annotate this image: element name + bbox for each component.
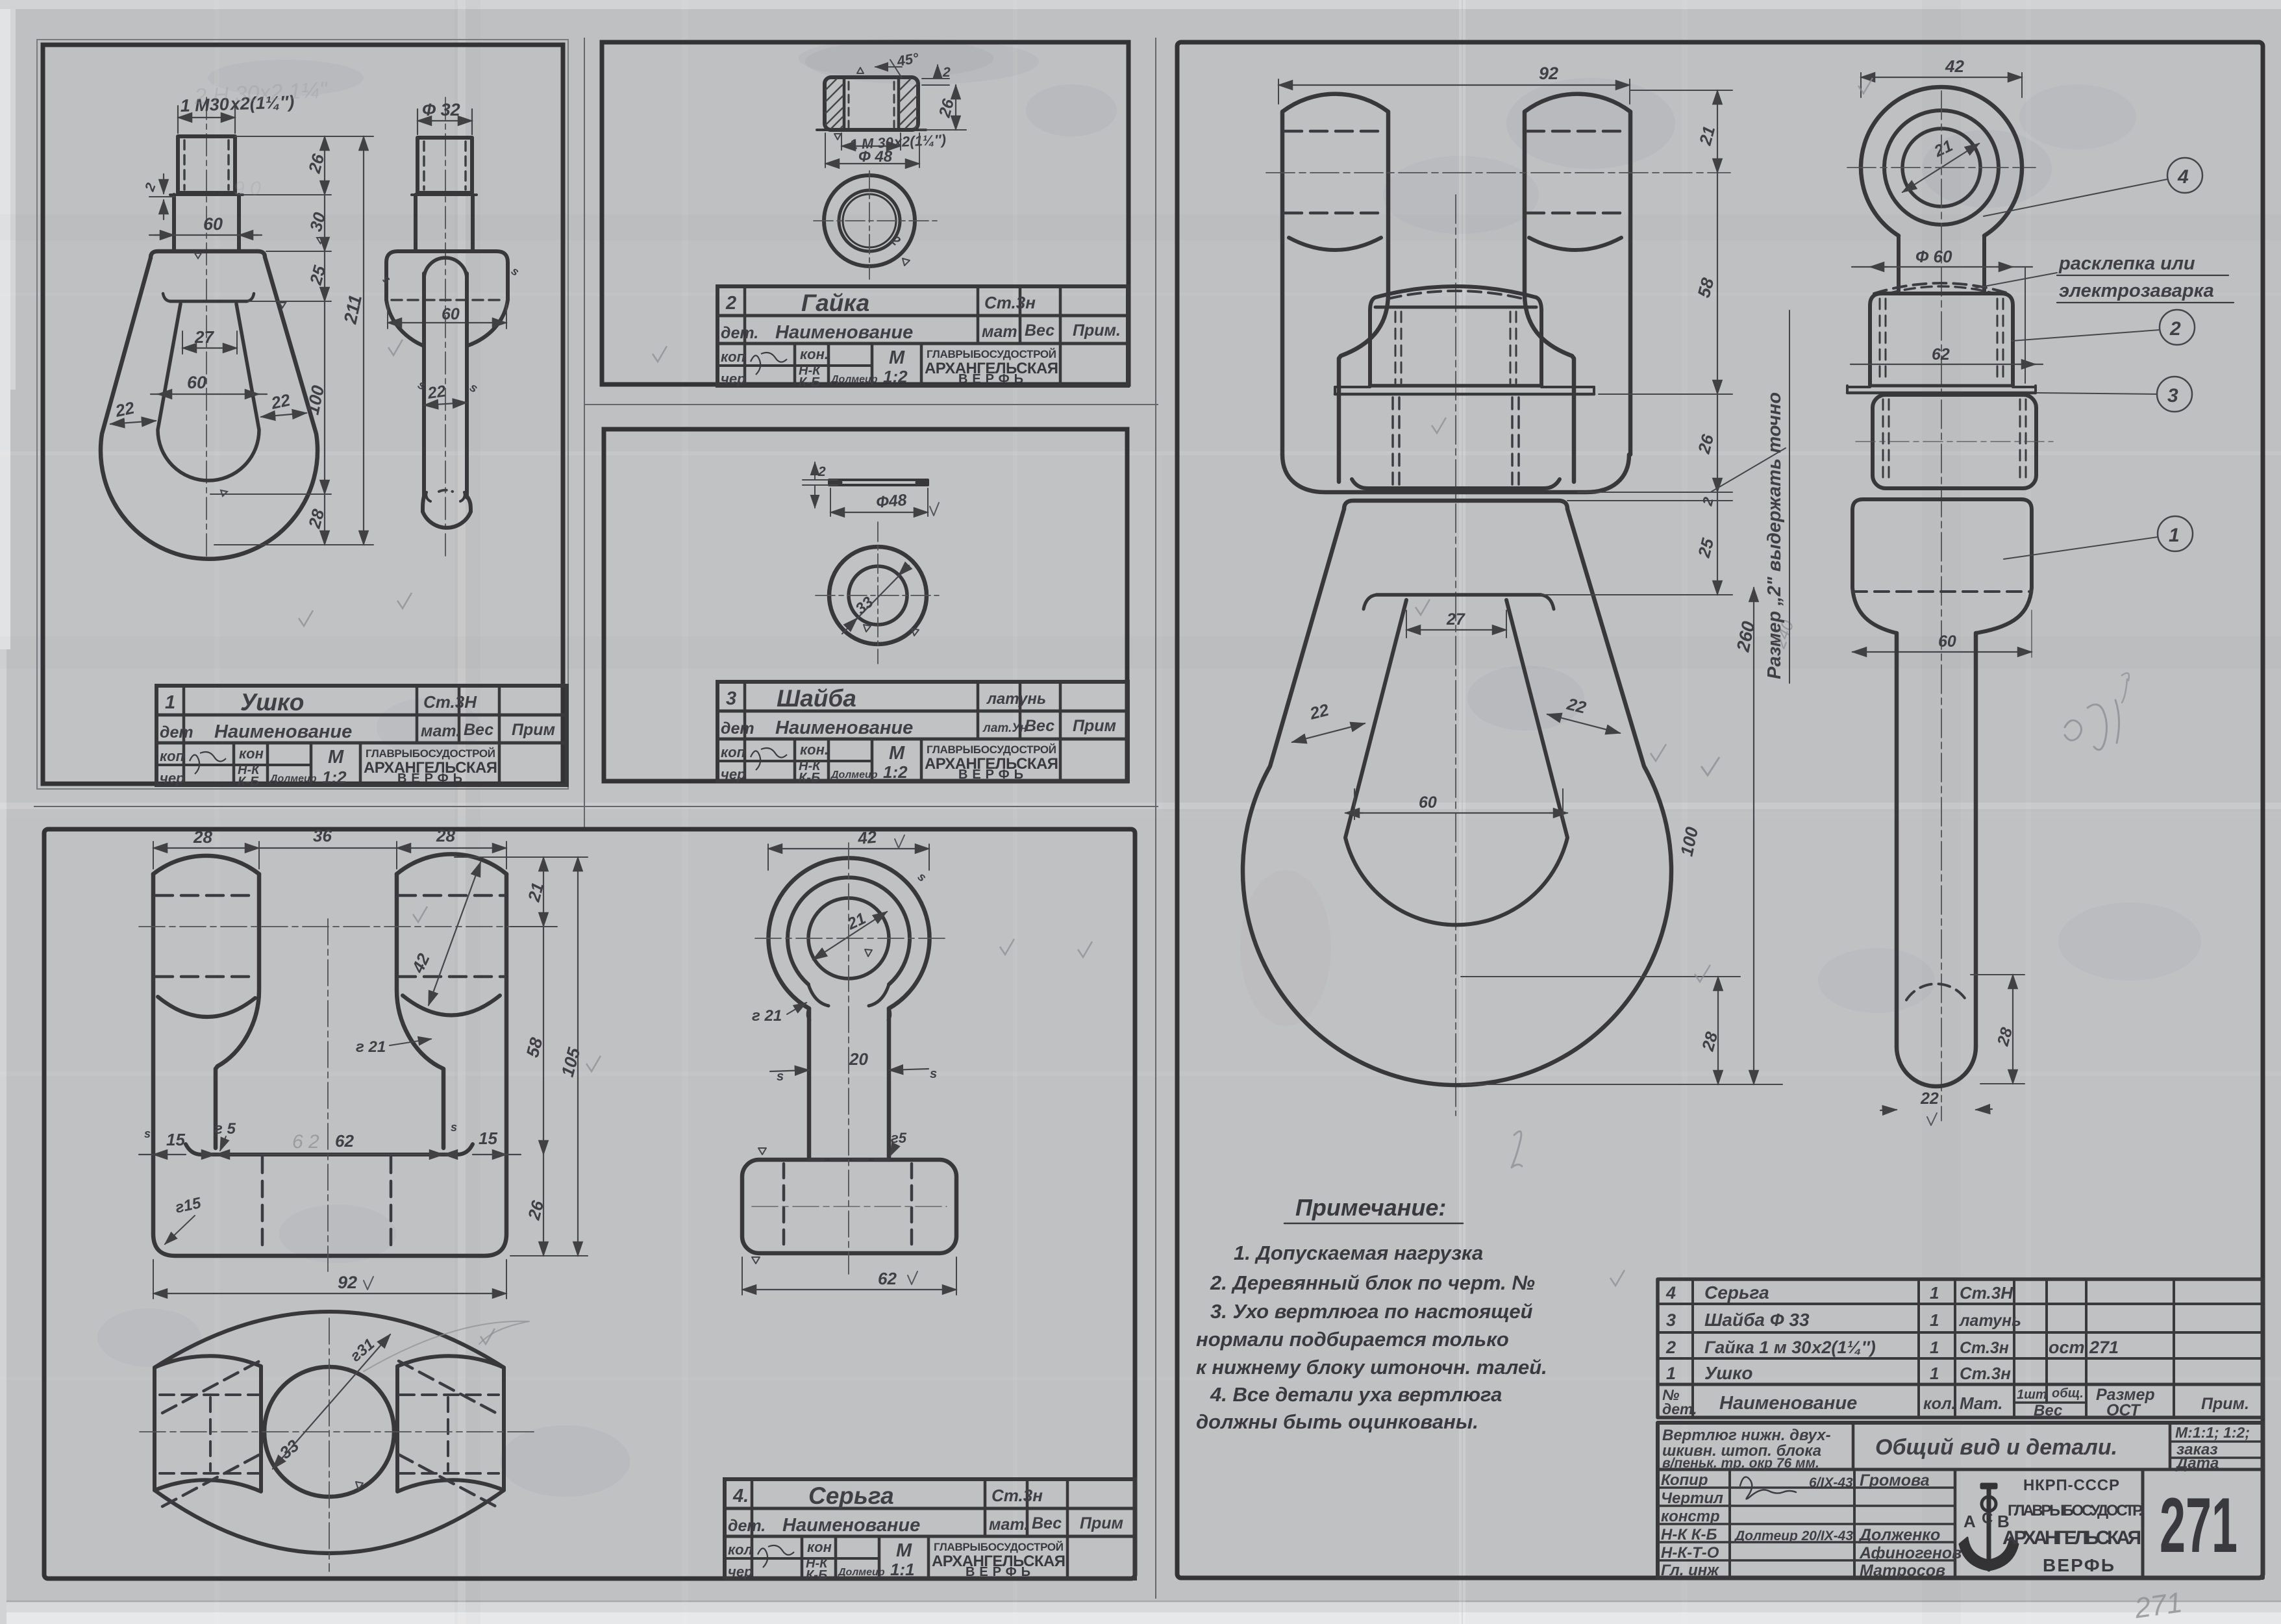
svg-text:Вес: Вес (1025, 717, 1054, 735)
svg-text:Долженко: Долженко (1858, 1526, 1940, 1544)
svg-text:дет.: дет. (721, 324, 758, 342)
svg-text:нормали подбирается только: нормали подбирается только (1196, 1328, 1509, 1351)
svg-text:36: 36 (313, 826, 332, 845)
svg-text:Общий вид и детали.: Общий вид и детали. (1875, 1435, 2117, 1460)
svg-text:к нижнему блоку штоночн. талей: к нижнему блоку штоночн. талей. (1196, 1356, 1547, 1379)
svg-text:Долтеир 20/IX-43: Долтеир 20/IX-43 (1734, 1529, 1853, 1543)
svg-text:3: 3 (2167, 385, 2178, 406)
svg-text:60: 60 (1938, 632, 1956, 651)
svg-text:ГЛАВРЫБОСУДОСТРОЙ: ГЛАВРЫБОСУДОСТРОЙ (927, 743, 1056, 756)
svg-text:Ст.3н: Ст.3н (991, 1486, 1043, 1505)
svg-text:Ф 32: Ф 32 (422, 100, 460, 119)
svg-text:дет: дет (721, 719, 754, 738)
svg-text:М: М (328, 747, 344, 768)
svg-text:60: 60 (203, 214, 223, 234)
svg-text:2: 2 (2169, 318, 2181, 340)
svg-text:ВЕРФЬ: ВЕРФЬ (2043, 1555, 2114, 1575)
svg-text:Ушко: Ушко (240, 689, 304, 716)
svg-text:М: М (889, 743, 905, 764)
svg-text:62: 62 (335, 1131, 354, 1151)
svg-text:Серьга: Серьга (808, 1482, 894, 1509)
svg-text:в/пеньк. тр. окр 76 мм.: в/пеньк. тр. окр 76 мм. (1662, 1456, 1819, 1471)
svg-text:2: 2 (817, 464, 826, 479)
svg-text:Наименование: Наименование (1719, 1393, 1857, 1414)
svg-text:1: 1 (2169, 525, 2180, 546)
svg-text:К-Б: К-Б (806, 1568, 827, 1582)
svg-text:28: 28 (193, 827, 212, 847)
svg-text:271: 271 (2132, 1586, 2185, 1624)
svg-text:15: 15 (166, 1130, 185, 1149)
svg-text:Ф 48: Ф 48 (858, 148, 893, 166)
svg-text:коп: коп (721, 744, 746, 760)
svg-text:Гайка: Гайка (801, 290, 869, 316)
svg-text:1. Допускаемая нагрузка: 1. Допускаемая нагрузка (1234, 1242, 1483, 1264)
svg-text:Примечание:: Примечание: (1295, 1194, 1446, 1221)
svg-text:Вертлюг нижн. двух-: Вертлюг нижн. двух- (1662, 1427, 1831, 1444)
svg-text:1: 1 (165, 692, 175, 713)
svg-text:62: 62 (878, 1269, 897, 1288)
svg-text:Ф48: Ф48 (875, 491, 908, 512)
svg-text:дет: дет (160, 723, 193, 742)
svg-text:Вес: Вес (1032, 1514, 1062, 1532)
svg-text:общ.: общ. (2052, 1386, 2084, 1401)
svg-text:чер: чер (721, 371, 746, 387)
svg-text:Долмеир: Долмеир (837, 1567, 885, 1578)
svg-text:2: 2 (942, 65, 951, 80)
svg-text:Матросов: Матросов (1860, 1562, 1945, 1580)
svg-text:Дата: Дата (2175, 1455, 2219, 1472)
svg-text:латунь: латунь (1959, 1312, 2021, 1330)
svg-text:расклепка или: расклепка или (2058, 253, 2195, 274)
svg-text:s: s (930, 1067, 937, 1081)
svg-text:констр: констр (1661, 1508, 1720, 1525)
svg-text:1: 1 (1930, 1364, 1939, 1383)
svg-text:коп: коп (721, 349, 746, 365)
svg-text:дет.: дет. (1662, 1401, 1697, 1418)
svg-text:4: 4 (1665, 1283, 1676, 1303)
svg-text:Размер „2" выдержать точно: Размер „2" выдержать точно (1764, 392, 1785, 679)
svg-text:Прим: Прим (1073, 717, 1116, 735)
svg-text:Ст.3н: Ст.3н (984, 293, 1036, 312)
svg-text:лат.Ун: лат.Ун (982, 721, 1028, 735)
svg-text:ОСТ: ОСТ (2106, 1401, 2142, 1419)
svg-text:s: s (144, 1127, 151, 1140)
svg-text:М:1:1; 1:2;: М:1:1; 1:2; (2175, 1424, 2250, 1441)
svg-text:Прим.: Прим. (2201, 1395, 2249, 1413)
svg-text:мат.: мат. (421, 722, 460, 740)
svg-text:62: 62 (1932, 345, 1950, 364)
svg-text:22: 22 (1920, 1090, 1939, 1108)
svg-text:Громова: Громова (1860, 1471, 1930, 1490)
svg-text:Шайба: Шайба (777, 685, 856, 712)
svg-text:Шайба Ф 33: Шайба Ф 33 (1704, 1310, 1810, 1330)
svg-text:1:1: 1:1 (890, 1560, 915, 1579)
svg-text:А: А (1963, 1512, 1976, 1531)
svg-text:6 2: 6 2 (292, 1131, 319, 1153)
svg-text:чер: чер (160, 770, 185, 786)
svg-text:s: s (451, 1121, 457, 1134)
svg-text:Ушко: Ушко (1704, 1363, 1752, 1383)
svg-text:27: 27 (194, 327, 214, 347)
svg-text:дет.: дет. (728, 1517, 766, 1535)
svg-text:АРХАНГЕЛЬСКАЯ: АРХАНГЕЛЬСКАЯ (2002, 1527, 2141, 1549)
svg-text:3: 3 (726, 688, 736, 709)
svg-text:1:2: 1:2 (322, 768, 347, 787)
svg-text:кол: кол (728, 1542, 753, 1558)
svg-text:М: М (896, 1540, 912, 1561)
svg-text:3. Ухо вертлюга по настоящей: 3. Ухо вертлюга по настоящей (1210, 1300, 1533, 1323)
svg-text:Чертил: Чертил (1661, 1490, 1723, 1507)
svg-text:1:2: 1:2 (883, 762, 908, 782)
svg-text:Мат.: Мат. (1960, 1393, 2002, 1413)
svg-text:1шт: 1шт (2017, 1388, 2047, 1402)
svg-text:6/IX-43: 6/IX-43 (1809, 1475, 1853, 1490)
svg-text:Прим: Прим (512, 721, 555, 739)
svg-text:Афиногенов: Афиногенов (1859, 1544, 1962, 1562)
svg-text:ГЛАВРЫБОСУДОСТР.: ГЛАВРЫБОСУДОСТР. (2008, 1502, 2143, 1519)
svg-text:22: 22 (426, 382, 447, 403)
svg-text:ост 271: ост 271 (2049, 1338, 2119, 1357)
svg-text:92: 92 (1539, 64, 1558, 83)
svg-text:4. Все детали уха вертлюга: 4. Все детали уха вертлюга (1210, 1383, 1502, 1406)
svg-text:Серьга: Серьга (1704, 1282, 1769, 1303)
svg-text:кон: кон (239, 745, 264, 762)
svg-text:ГЛАВРЫБОСУДОСТРОЙ: ГЛАВРЫБОСУДОСТРОЙ (927, 348, 1056, 360)
svg-text:К-Б: К-Б (238, 775, 259, 789)
svg-text:2: 2 (725, 293, 736, 314)
svg-text:мат.: мат. (989, 1516, 1028, 1534)
svg-text:60: 60 (442, 305, 460, 323)
svg-text:Долмеир: Долмеир (830, 769, 878, 781)
svg-text:мат: мат (982, 323, 1017, 341)
svg-text:9 0: 9 0 (234, 178, 261, 199)
svg-text:Наименование: Наименование (214, 721, 352, 742)
svg-text:К-Б: К-Б (799, 771, 820, 785)
svg-text:Ст.3н: Ст.3н (1960, 1339, 2009, 1357)
svg-text:s: s (777, 1069, 784, 1084)
svg-text:С: С (1982, 1510, 1993, 1527)
svg-text:Вес: Вес (464, 721, 493, 739)
svg-text:1: 1 (1666, 1364, 1676, 1383)
svg-text:20: 20 (849, 1049, 868, 1069)
svg-text:Наименование: Наименование (775, 322, 913, 343)
svg-text:кон.: кон. (800, 742, 829, 758)
svg-text:271: 271 (2160, 1482, 2237, 1569)
svg-text:1: 1 (1930, 1310, 1939, 1330)
svg-text:3: 3 (1666, 1310, 1676, 1330)
svg-text:чер: чер (728, 1564, 753, 1580)
svg-text:латунь: латунь (986, 690, 1046, 708)
svg-text:Н-К-Т-О: Н-К-Т-О (1661, 1544, 1719, 1562)
svg-text:42: 42 (856, 827, 878, 849)
svg-text:Долмеир: Долмеир (830, 374, 878, 385)
svg-text:Вес: Вес (1025, 321, 1054, 340)
svg-text:27: 27 (1446, 610, 1465, 629)
svg-text:28: 28 (436, 826, 455, 845)
svg-text:4: 4 (2177, 166, 2189, 188)
svg-text:Вес: Вес (2034, 1402, 2062, 1419)
svg-text:1:2: 1:2 (883, 367, 908, 386)
svg-text:Прим.: Прим. (1073, 321, 1121, 340)
svg-text:1: 1 (1930, 1338, 1939, 1357)
svg-text:15: 15 (479, 1129, 497, 1148)
svg-text:Н-К К-Б: Н-К К-Б (1661, 1526, 1717, 1543)
svg-text:2: 2 (1665, 1338, 1676, 1357)
svg-text:Ст.3н: Ст.3н (1960, 1364, 2011, 1383)
svg-text:Наименование: Наименование (782, 1515, 920, 1536)
svg-text:г 5: г 5 (214, 1120, 236, 1138)
svg-text:г5: г5 (891, 1130, 907, 1146)
svg-text:ГЛАВРЫБОСУДОСТРОЙ: ГЛАВРЫБОСУДОСТРОЙ (366, 747, 495, 760)
svg-text:коп: коп (160, 748, 185, 764)
svg-text:2. Деревянный блок по черт. №: 2. Деревянный блок по черт. № (1210, 1271, 1535, 1294)
svg-text:60: 60 (1419, 793, 1437, 812)
svg-text:кон: кон (807, 1539, 832, 1555)
svg-text:Гл. инж: Гл. инж (1661, 1562, 1719, 1579)
svg-text:1: 1 (1930, 1283, 1939, 1303)
svg-text:г 21: г 21 (752, 1007, 782, 1025)
svg-text:92: 92 (338, 1273, 357, 1292)
svg-text:60: 60 (187, 373, 206, 392)
svg-text:ГЛАВРЫБОСУДОСТРОЙ: ГЛАВРЫБОСУДОСТРОЙ (934, 1541, 1064, 1553)
svg-text:Наименование: Наименование (775, 718, 913, 738)
svg-text:Гайка 1 м 30х2(1¼″): Гайка 1 м 30х2(1¼″) (1704, 1338, 1876, 1357)
svg-text:кол.: кол. (1923, 1395, 1956, 1413)
svg-text:Прим: Прим (1080, 1514, 1123, 1532)
svg-text:Копир: Копир (1661, 1471, 1708, 1489)
svg-text:должны быть оцинкованы.: должны быть оцинкованы. (1196, 1410, 1478, 1433)
svg-text:электрозаварка: электрозаварка (2059, 281, 2214, 301)
svg-text:Ст.3Н: Ст.3Н (1960, 1283, 2013, 1303)
svg-text:М: М (889, 347, 905, 368)
svg-text:Долмеир: Долмеир (269, 773, 317, 784)
svg-text:Ст.3Н: Ст.3Н (423, 692, 477, 712)
svg-text:К-Б: К-Б (799, 375, 820, 390)
svg-text:4.: 4. (732, 1486, 749, 1506)
svg-text:НКРП-СССР: НКРП-СССР (2023, 1477, 2119, 1494)
svg-text:г 21: г 21 (356, 1038, 386, 1056)
svg-text:чер: чер (721, 766, 746, 782)
svg-text:Ф 60: Ф 60 (1915, 247, 1952, 266)
svg-text:кон.: кон. (800, 346, 829, 362)
svg-text:42: 42 (1945, 56, 1964, 76)
